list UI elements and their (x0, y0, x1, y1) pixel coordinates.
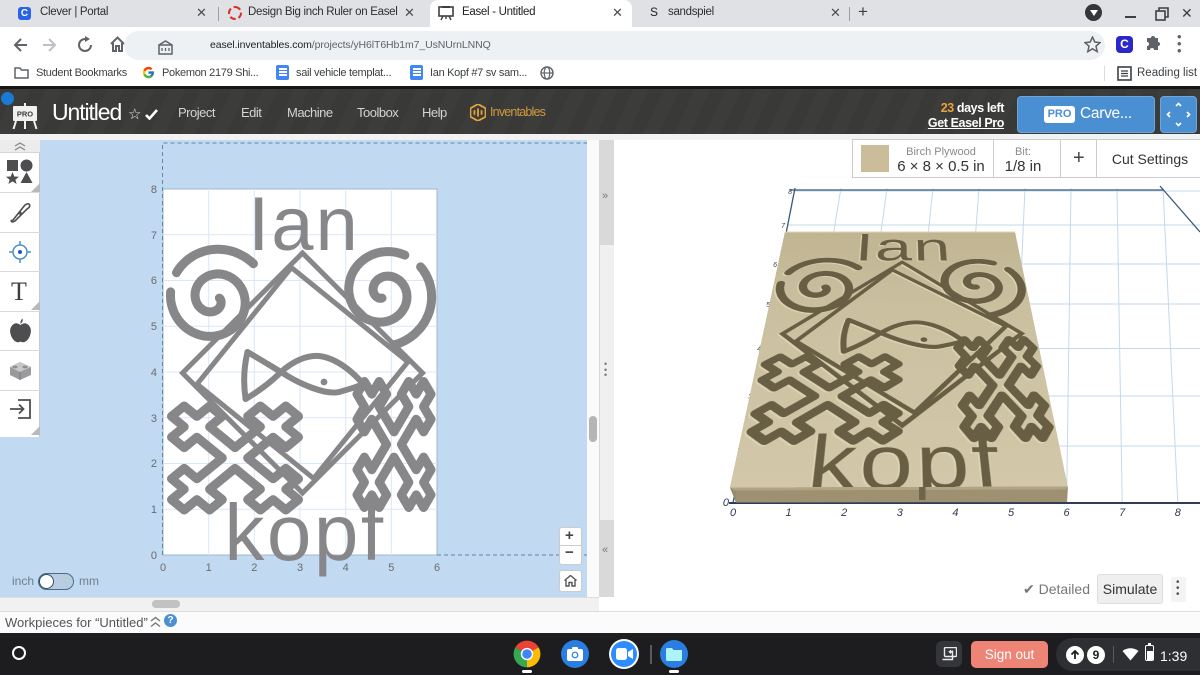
svg-text:3: 3 (897, 507, 904, 519)
svg-text:6: 6 (151, 275, 157, 287)
svg-text:2: 2 (840, 507, 847, 519)
svg-text:0: 0 (723, 497, 730, 509)
svg-text:8: 8 (1175, 507, 1182, 519)
svg-text:3: 3 (151, 413, 157, 425)
svg-text:0: 0 (730, 507, 737, 519)
svg-text:1: 1 (206, 562, 212, 574)
svg-text:8: 8 (151, 184, 157, 196)
svg-text:6: 6 (1064, 507, 1071, 519)
svg-text:4: 4 (151, 367, 157, 379)
svg-text:7: 7 (151, 230, 157, 242)
svg-text:7: 7 (1119, 507, 1126, 519)
svg-text:7: 7 (781, 223, 786, 230)
svg-text:4: 4 (952, 507, 958, 519)
svg-text:0: 0 (151, 550, 157, 562)
svg-text:PRO: PRO (17, 110, 33, 119)
svg-text:5: 5 (151, 321, 157, 333)
svg-text:5: 5 (1008, 507, 1015, 519)
svg-text:1: 1 (151, 504, 157, 516)
svg-text:8: 8 (788, 189, 792, 196)
svg-text:6: 6 (434, 562, 440, 574)
svg-text:0: 0 (160, 562, 166, 574)
svg-text:1: 1 (786, 507, 792, 519)
svg-text:2: 2 (151, 458, 157, 470)
svg-text:5: 5 (388, 562, 394, 574)
